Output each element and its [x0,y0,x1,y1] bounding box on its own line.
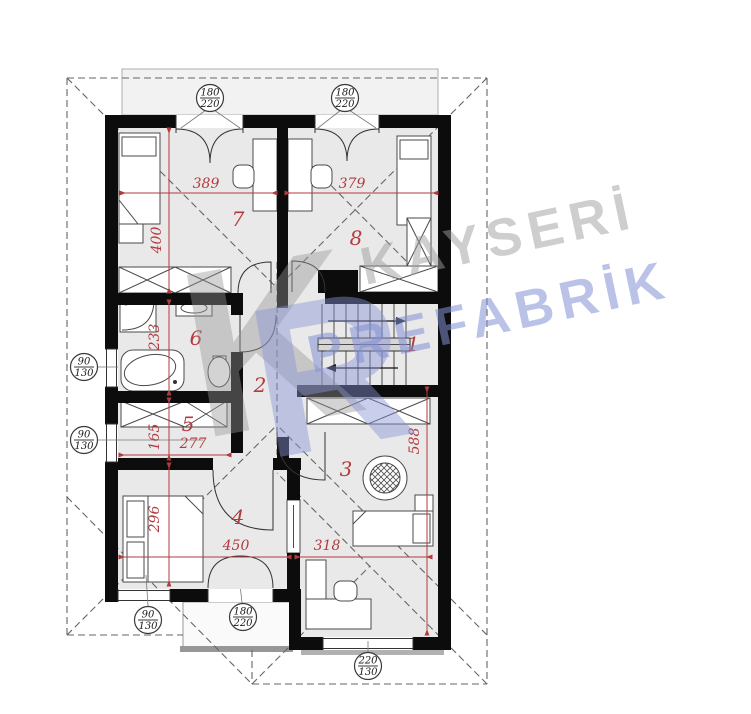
toilet [208,356,230,387]
dim-room3-height: 588 [407,428,423,455]
svg-text:180: 180 [200,88,220,99]
floor-plan-drawing: 389 379 400 233 165 277 296 450 318 588 … [0,0,751,714]
svg-text:180: 180 [233,607,253,618]
svg-text:90: 90 [78,357,91,368]
room-label-5: 5 [182,412,195,436]
dim-room5-width: 277 [179,436,207,452]
dim-room3-width: 318 [314,538,341,554]
room-label-4: 4 [231,505,245,529]
svg-text:130: 130 [74,368,94,379]
wardrobe-room5 [121,401,227,427]
svg-text:180: 180 [335,88,355,99]
svg-text:130: 130 [138,621,158,632]
svg-text:90: 90 [78,430,91,441]
window-bath-left [105,349,118,387]
dim-room5-height: 165 [147,424,163,451]
dim-bath-height: 233 [147,324,163,352]
pocket-door-room4-3 [287,500,300,553]
floor-plan: 389 379 400 233 165 277 296 450 318 588 … [0,0,751,714]
rug-room3 [363,456,407,500]
window-room5-left [105,424,118,462]
bed-room4 [123,496,203,582]
room-label-6: 6 [190,326,203,350]
svg-text:220: 220 [334,99,355,110]
dim-room8-width: 379 [339,176,366,192]
dim-room4-width: 450 [222,538,250,554]
room-label-1: 1 [407,332,420,356]
dim-room4-height: 296 [147,506,163,534]
wardrobe-room7 [119,267,231,293]
room-label-2: 2 [253,373,267,397]
room-label-8: 8 [350,226,363,250]
window-room4-bottom [118,589,170,602]
svg-text:90: 90 [142,610,155,621]
bathtub [121,350,184,391]
terrace-slab [122,69,438,115]
svg-text:130: 130 [358,667,378,678]
dim-room7-width: 389 [193,176,220,192]
wardrobe-room8 [360,266,438,292]
wardrobe-room8-tall [407,218,431,266]
bed-room8 [397,136,431,225]
svg-text:220: 220 [199,99,220,110]
room-label-7: 7 [232,207,245,231]
svg-text:220: 220 [232,618,253,629]
room-label-3: 3 [340,457,353,481]
svg-text:220: 220 [357,656,378,667]
svg-text:130: 130 [74,441,94,452]
wardrobe-landing [307,398,430,424]
dim-room7-height: 400 [149,227,165,255]
